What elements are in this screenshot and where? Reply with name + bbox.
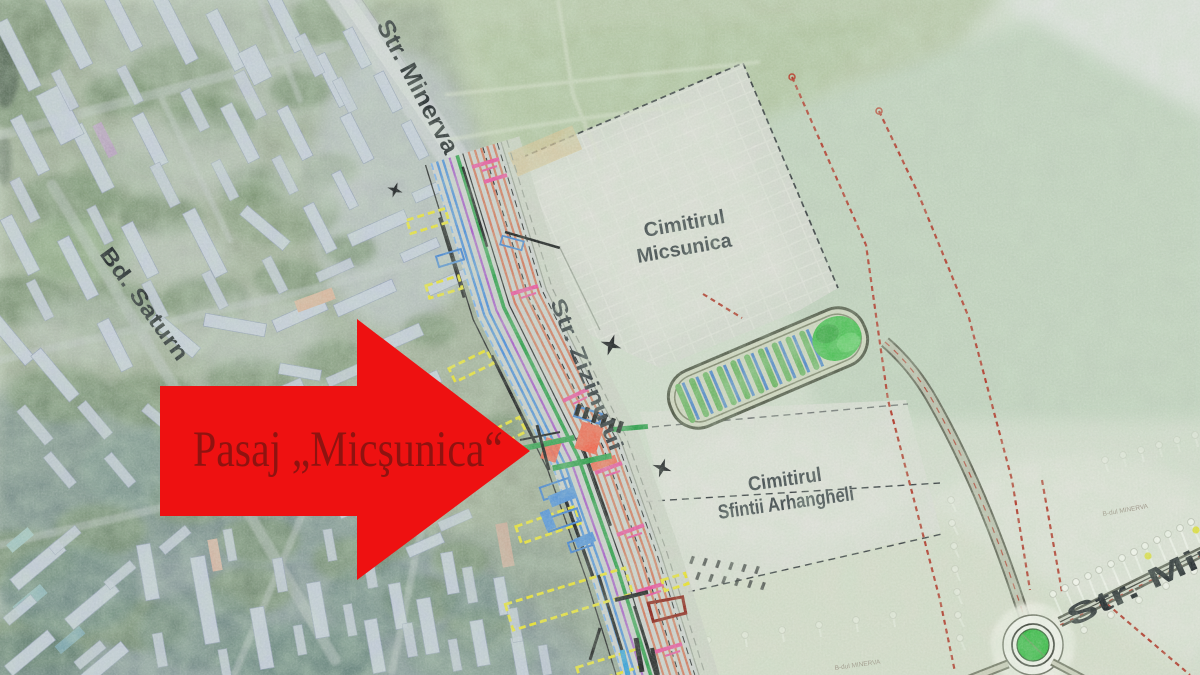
svg-text:Pasaj „Micşunica“: Pasaj „Micşunica“ bbox=[193, 422, 503, 478]
